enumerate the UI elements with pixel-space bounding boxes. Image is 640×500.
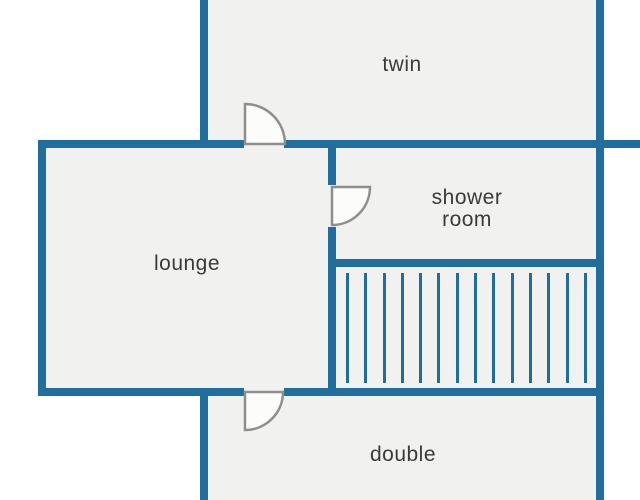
twin-door-swing-icon (245, 104, 285, 144)
twin-room-label: twin (382, 54, 421, 76)
shower-room-door-swing-icon (332, 187, 370, 225)
floor-plan: twin shower room lounge double (0, 0, 640, 500)
double-door-swing-icon (245, 392, 283, 430)
lounge-room-label: lounge (154, 253, 220, 275)
double-room-label: double (370, 444, 436, 466)
shower-room-label: shower room (432, 187, 503, 231)
door-swings-layer (0, 0, 640, 500)
